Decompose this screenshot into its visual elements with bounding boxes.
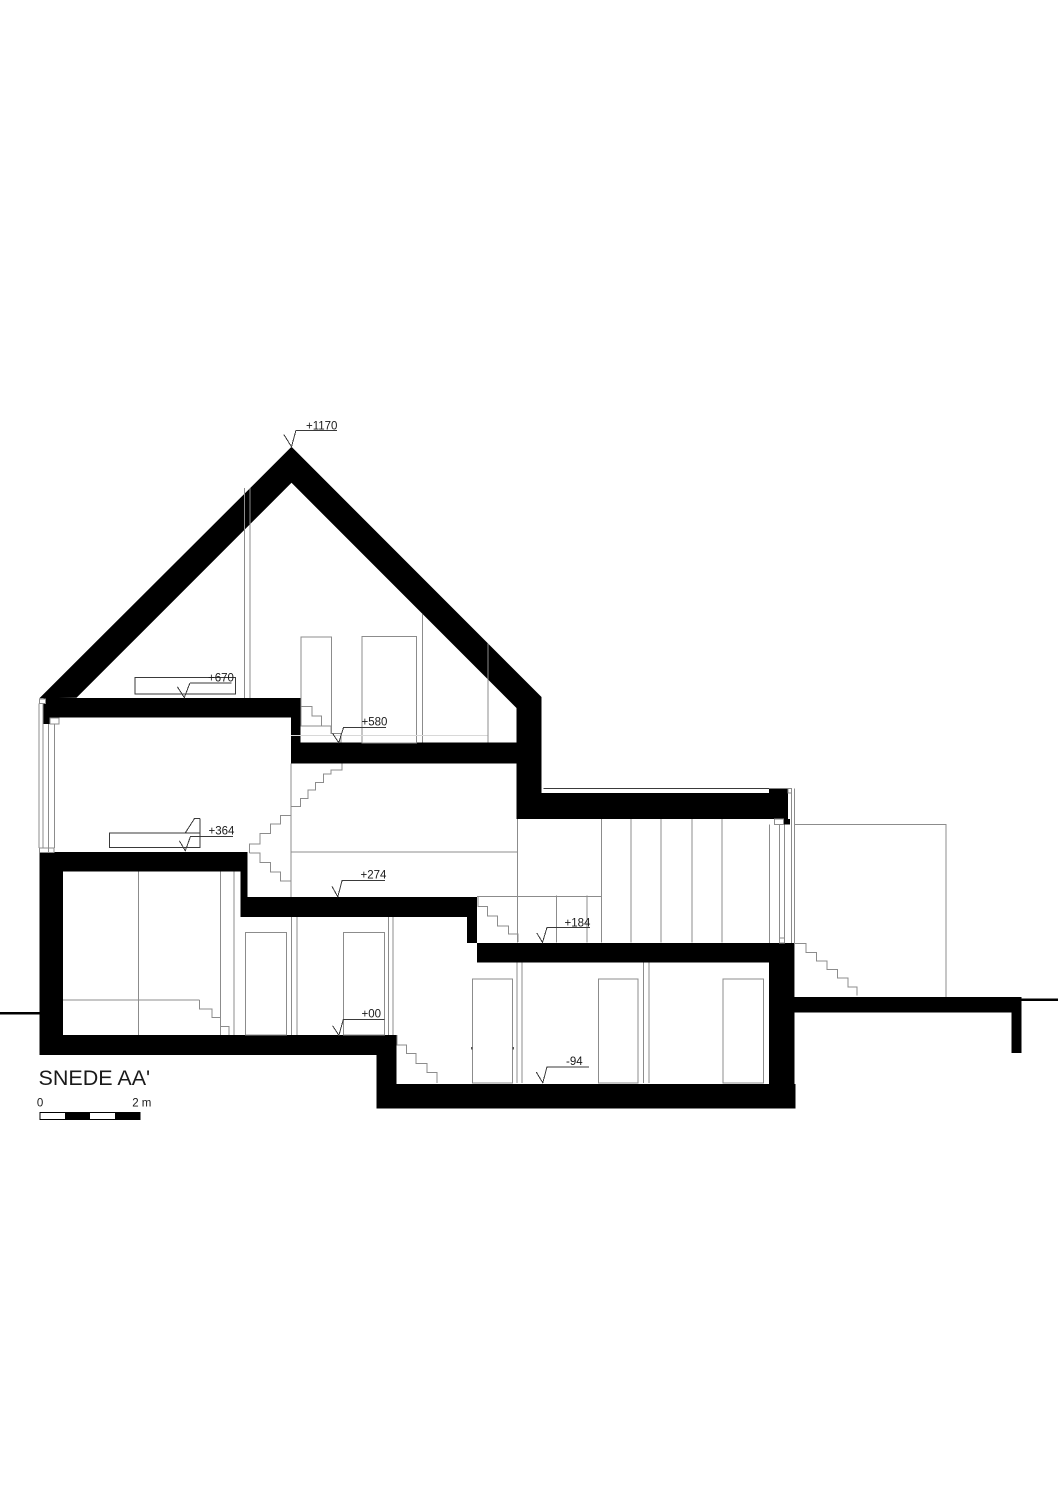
svg-text:2 m: 2 m <box>132 1098 151 1110</box>
svg-text:-94: -94 <box>566 1056 583 1068</box>
svg-text:+364: +364 <box>209 825 236 837</box>
svg-text:+274: +274 <box>361 869 388 881</box>
svg-text:+184: +184 <box>565 917 592 929</box>
svg-text:+670: +670 <box>208 673 234 685</box>
svg-text:0: 0 <box>37 1098 43 1110</box>
svg-text:SNEDE AA': SNEDE AA' <box>39 1066 151 1090</box>
svg-text:+1170: +1170 <box>306 421 337 433</box>
svg-text:+580: +580 <box>362 717 388 729</box>
svg-text:+00: +00 <box>362 1009 382 1021</box>
